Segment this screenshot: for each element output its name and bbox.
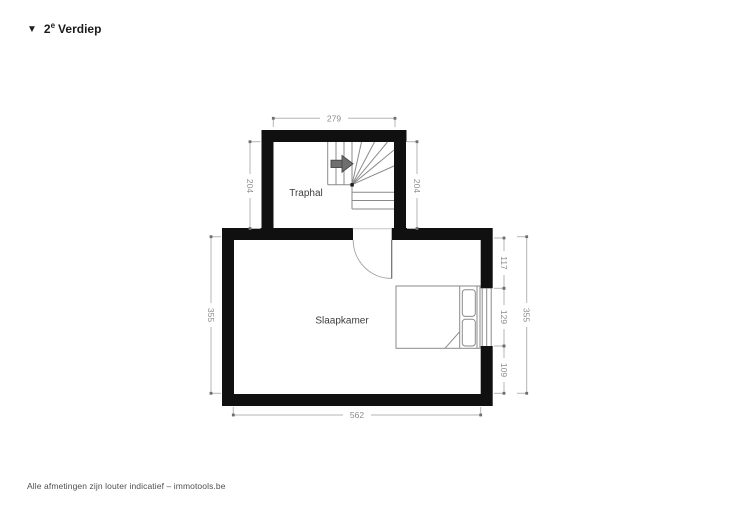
dim-right-window: 129 [499, 310, 509, 324]
stair-winder [352, 166, 394, 185]
room-label-stairhall: Traphal [289, 188, 323, 199]
staircase [328, 142, 394, 209]
wall-bedroom-top-left [222, 228, 353, 240]
dim-stairhall-width: 279 [327, 113, 341, 123]
wall-bedroom-left [222, 240, 234, 394]
dim-stairhall-height-left: 204 [245, 179, 255, 193]
stair-winder [352, 142, 375, 185]
wall-stairhall-right [394, 142, 406, 228]
dim-bedroom-height-right: 355 [522, 308, 532, 322]
wall-bedroom-right-lower [481, 346, 493, 394]
stair-direction-arrow-icon [331, 156, 353, 173]
wall-bedroom-bottom [222, 394, 493, 406]
stair-winder-center-dot [350, 183, 353, 186]
disclaimer-text: Alle afmetingen zijn louter indicatief –… [27, 481, 226, 491]
walls [222, 130, 493, 406]
stair-winder [352, 142, 388, 185]
arrow-body [331, 160, 342, 167]
bed-pillow [462, 290, 475, 317]
window [482, 288, 491, 346]
wall-stairhall-left [262, 142, 274, 228]
bed-pillow [462, 319, 475, 346]
dimension-lines [211, 118, 527, 415]
dim-right-top: 117 [499, 256, 509, 270]
dim-right-bottom: 109 [499, 363, 509, 377]
room-label-bedroom: Slaapkamer [315, 316, 369, 327]
wall-bedroom-right-upper [481, 240, 493, 288]
door-swing-arc [353, 240, 392, 279]
bed [396, 286, 480, 348]
floorplan-page: ▼ 2eVerdiep [0, 0, 736, 520]
dim-bedroom-width: 562 [350, 410, 364, 420]
dim-stairhall-height-right: 204 [412, 179, 422, 193]
dim-bedroom-height-left: 355 [206, 308, 216, 322]
wall-stairhall-top [262, 130, 407, 142]
wall-bedroom-top-right [392, 228, 493, 240]
door [353, 229, 392, 279]
floorplan-drawing: 279 204 204 355 117 129 109 355 562 Trap… [0, 0, 736, 520]
arrow-head [342, 156, 353, 173]
